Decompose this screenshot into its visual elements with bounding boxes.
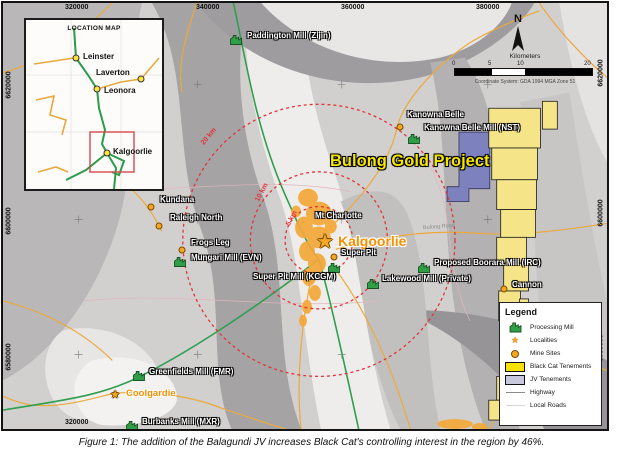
grid-coordinate-label: 6580000 <box>6 343 13 370</box>
map-marker-label: Greenfields Mill (FMR) <box>149 368 233 376</box>
legend-row: Mine Sites <box>505 347 596 360</box>
map-marker-label: Coolgardie <box>126 389 176 399</box>
legend-label: Local Roads <box>530 402 566 409</box>
map-marker-label: Kundana <box>160 196 194 204</box>
locality-star-icon: ★ <box>110 390 120 401</box>
legend-label: JV Tenements <box>530 376 571 383</box>
jv-tenement-swatch <box>505 375 525 385</box>
legend-row: Highway <box>505 386 596 399</box>
grid-coordinate-label: 6600000 <box>598 199 605 226</box>
map-marker-label: Raleigh North <box>170 214 222 222</box>
town-label: Kalgoorlie <box>113 147 152 156</box>
map-marker-label: Burbanks Mill (MXR) <box>142 418 220 426</box>
legend: Legend Processing Mill ★ Localities Mine… <box>499 302 602 426</box>
local-road-line-icon <box>506 405 525 406</box>
highway-line-icon <box>506 392 525 393</box>
map-marker-label: Cannon <box>512 281 542 289</box>
scale-bar-title: Kilometers <box>454 53 596 60</box>
mill-icon <box>133 369 146 380</box>
grid-coordinate-label: 320000 <box>65 4 88 11</box>
mill-icon <box>328 261 341 272</box>
locality-star-icon: ★ <box>316 232 334 252</box>
inset-title: LOCATION MAP <box>26 25 162 32</box>
grid-coordinate-label: 380000 <box>476 4 499 11</box>
town-label: Laverton <box>96 68 130 77</box>
mine-site-dot-icon <box>501 286 508 293</box>
project-area-label: Bulong Gold Project <box>330 152 490 171</box>
map-marker-label: Mt Charlotte <box>315 212 362 220</box>
map-marker-label: Proposed Boorara Mill (IRC) <box>434 259 541 267</box>
mine-site-dot-icon <box>511 350 519 358</box>
map-marker-label: Lakewood Mill (Private) <box>382 275 471 283</box>
map-marker-label: Kanowna Belle Mill (NST) <box>424 124 520 132</box>
map-marker-label: Paddington Mill (Zijin) <box>247 32 331 40</box>
north-arrow-icon <box>509 25 527 53</box>
north-label: N <box>504 13 532 25</box>
map-marker-label: Kanowna Belle <box>407 111 464 119</box>
mine-site-dot-icon <box>397 124 404 131</box>
town-dot-icon <box>94 86 101 93</box>
map-canvas: 20 km10 km5 km Paddington Mill (Zijin)Ka… <box>1 1 609 431</box>
mill-icon <box>367 277 380 288</box>
mine-site-dot-icon <box>179 247 186 254</box>
processing-mill-icon <box>505 322 525 333</box>
map-marker-label: Frogs Leg <box>191 239 230 247</box>
black-cat-tenement-swatch <box>505 362 525 372</box>
mill-icon <box>230 33 243 44</box>
inset-location-map: LOCATION MAP LeinsterLavertonLeonoraKalg… <box>24 18 164 191</box>
mill-icon <box>408 132 421 143</box>
mill-icon <box>126 419 139 430</box>
mill-icon <box>418 261 431 272</box>
legend-row: Black Cat Tenements <box>505 360 596 373</box>
scale-tick-label: 0 <box>452 61 455 67</box>
scale-tick-label: 10 <box>517 61 524 67</box>
map-marker-label: Super Pit <box>341 249 376 257</box>
scale-bar: Kilometers 051020 Coordinate System: GDA… <box>454 53 596 91</box>
legend-row: Processing Mill <box>505 321 596 334</box>
mill-icon <box>174 255 187 266</box>
figure-page: 20 km10 km5 km Paddington Mill (Zijin)Ka… <box>0 0 623 458</box>
grid-coordinate-label: 320000 <box>65 419 88 426</box>
map-marker-label: Kalgoorlie <box>338 234 406 248</box>
legend-label: Black Cat Tenements <box>530 363 591 370</box>
legend-label: Localities <box>530 337 557 344</box>
grid-coordinate-label: 340000 <box>196 4 219 11</box>
town-label: Leinster <box>83 52 114 61</box>
inset-roads <box>26 20 162 189</box>
mine-site-dot-icon <box>331 254 338 261</box>
figure-caption: Figure 1: The addition of the Balagundi … <box>0 437 623 448</box>
legend-label: Processing Mill <box>530 324 574 331</box>
grid-coordinate-label: 6620000 <box>6 71 13 98</box>
scale-tick-label: 5 <box>488 61 491 67</box>
mine-site-dot-icon <box>156 223 163 230</box>
locality-star-icon: ★ <box>511 336 519 345</box>
scale-tick-label: 20 <box>584 61 591 67</box>
legend-row: JV Tenements <box>505 373 596 386</box>
scale-bar-graphic <box>454 68 593 76</box>
town-label: Leonora <box>104 86 136 95</box>
legend-label: Mine Sites <box>530 350 560 357</box>
legend-row: Local Roads <box>505 399 596 412</box>
legend-label: Highway <box>530 389 555 396</box>
map-marker-label: Super Pit Mill (KCGM) <box>253 273 336 281</box>
map-marker-label: Mungari Mill (EVN) <box>191 254 262 262</box>
legend-row: ★ Localities <box>505 334 596 347</box>
coordinate-system-note: Coordinate System: GDA 1994 MGA Zone 51 <box>450 79 600 85</box>
mine-site-dot-icon <box>148 204 155 211</box>
grid-coordinate-label: 360000 <box>341 4 364 11</box>
town-dot-icon <box>73 55 80 62</box>
grid-coordinate-label: 6600000 <box>6 207 13 234</box>
legend-title: Legend <box>505 307 596 317</box>
town-dot-icon <box>138 76 145 83</box>
town-dot-icon <box>104 150 111 157</box>
